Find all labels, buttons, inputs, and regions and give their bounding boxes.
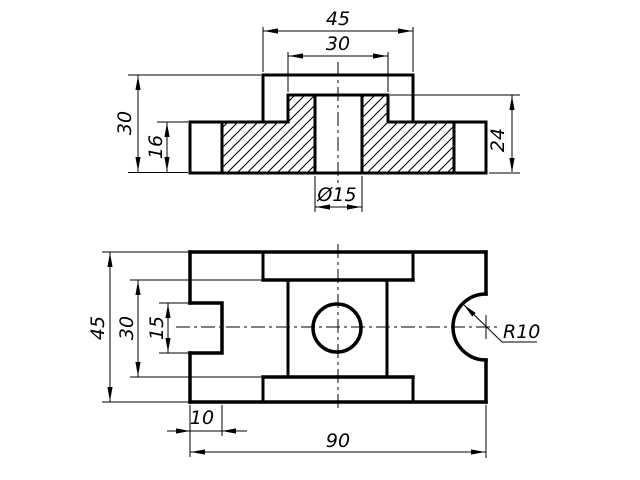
dim-label-notch-width: 15 — [146, 316, 168, 340]
dim-label-top-width: 45 — [326, 8, 350, 30]
engineering-drawing: 45 30 30 16 — [0, 0, 640, 480]
dim-label-total-length: 90 — [326, 430, 350, 452]
dim-label-total-height: 30 — [114, 111, 136, 135]
dim-label-notch-depth: 10 — [190, 407, 214, 429]
dim-label-boss-depth: 30 — [116, 316, 138, 340]
paper-background — [0, 0, 640, 480]
dim-label-scallop-radius: R10 — [503, 321, 540, 343]
dim-label-hole-diameter: Ø15 — [316, 184, 356, 206]
dim-label-flange-height: 16 — [145, 135, 167, 159]
technical-drawing-sheet: 45 30 30 16 — [0, 0, 640, 480]
dim-label-total-depth: 45 — [87, 316, 109, 340]
dim-label-boss-height: 24 — [487, 128, 509, 152]
dim-label-boss-width: 30 — [326, 33, 350, 55]
